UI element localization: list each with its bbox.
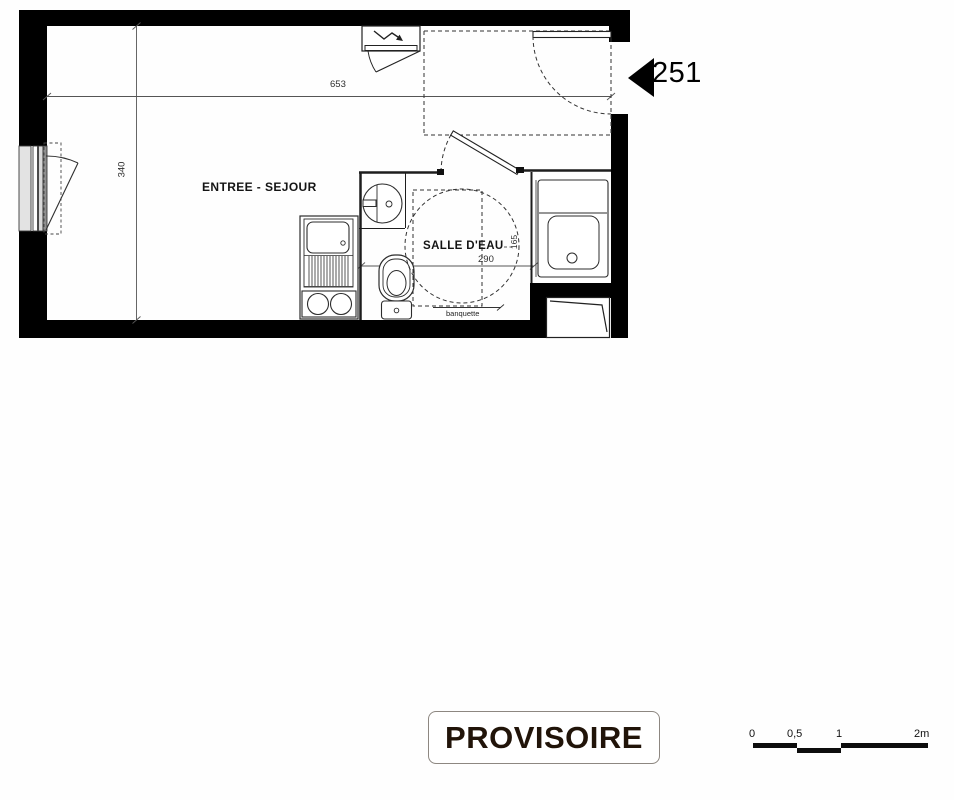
bathroom-door-stop-left bbox=[437, 169, 444, 175]
dim-290-label: 290 bbox=[478, 254, 494, 265]
washbasin-drain bbox=[386, 201, 392, 207]
provisional-stamp-text: PROVISOIRE bbox=[445, 720, 643, 756]
washbasin bbox=[363, 184, 402, 223]
entrance-door-swing-arc bbox=[533, 36, 611, 114]
wc-seat bbox=[387, 271, 406, 296]
scale-bar-segment-3 bbox=[841, 743, 928, 748]
entrance-door-leaf bbox=[533, 32, 611, 38]
window-frame-mid bbox=[39, 146, 44, 231]
scale-bar-segment-1 bbox=[753, 743, 797, 748]
technical-closet bbox=[362, 26, 420, 72]
kitchenette bbox=[300, 216, 358, 319]
dim-165-label: 165 bbox=[509, 235, 519, 249]
window-swing-arc bbox=[46, 156, 78, 163]
shower bbox=[536, 180, 608, 277]
scale-tick-0: 0 bbox=[749, 728, 755, 740]
bench-label: banquette bbox=[446, 309, 479, 318]
sink-bowl bbox=[307, 222, 349, 253]
window-shutter-panel bbox=[19, 146, 31, 231]
window-frame-outer bbox=[33, 146, 38, 231]
unit-number-label: 251 bbox=[652, 57, 702, 90]
window-left bbox=[19, 143, 78, 234]
room-label-living: ENTREE - SEJOUR bbox=[202, 180, 317, 194]
scale-tick-2m: 2m bbox=[914, 728, 929, 740]
room-label-bathroom: SALLE D'EAU bbox=[423, 240, 504, 252]
wc-button bbox=[394, 308, 399, 313]
dim-653-label: 653 bbox=[330, 79, 346, 90]
dim-340-label: 340 bbox=[116, 162, 127, 178]
bathroom-door-stop-right bbox=[516, 167, 524, 173]
entry-zone bbox=[424, 31, 611, 135]
wall-right bbox=[611, 114, 628, 338]
scale-bar-segment-2 bbox=[797, 748, 841, 753]
hob-burner-left bbox=[308, 294, 329, 315]
scale-tick-05: 0,5 bbox=[787, 728, 802, 740]
wall-bottom bbox=[30, 320, 546, 338]
bathroom-door bbox=[437, 131, 524, 175]
entrance-door bbox=[533, 32, 611, 115]
scale-tick-1: 1 bbox=[836, 728, 842, 740]
wc-toilet bbox=[379, 255, 414, 319]
provisional-stamp: PROVISOIRE bbox=[428, 711, 660, 764]
wall-top-right-stub bbox=[609, 10, 630, 42]
closet-shelf bbox=[365, 46, 417, 51]
wall-niche-left bbox=[530, 283, 546, 338]
sink-drain bbox=[341, 241, 345, 245]
washbasin-tap bbox=[363, 200, 376, 207]
wall-left-upper bbox=[19, 10, 47, 146]
closet-door-leaf bbox=[376, 51, 420, 72]
hob-burner-right bbox=[331, 294, 352, 315]
wall-top bbox=[19, 10, 611, 26]
scale-bar: 0 0,5 1 2m bbox=[740, 726, 940, 758]
closet-door-arc bbox=[368, 51, 376, 72]
bathroom-door-swing-arc bbox=[441, 133, 452, 172]
bathroom-door-leaf bbox=[451, 131, 520, 174]
floor-plan-drawing bbox=[0, 0, 954, 800]
floor-plan-page: ENTREE - SEJOUR SALLE D'EAU banquette 65… bbox=[0, 0, 954, 800]
unit-pointer-icon bbox=[628, 58, 654, 97]
window-leaf bbox=[46, 163, 78, 230]
shower-drain bbox=[567, 253, 577, 263]
service-niche bbox=[547, 298, 610, 338]
